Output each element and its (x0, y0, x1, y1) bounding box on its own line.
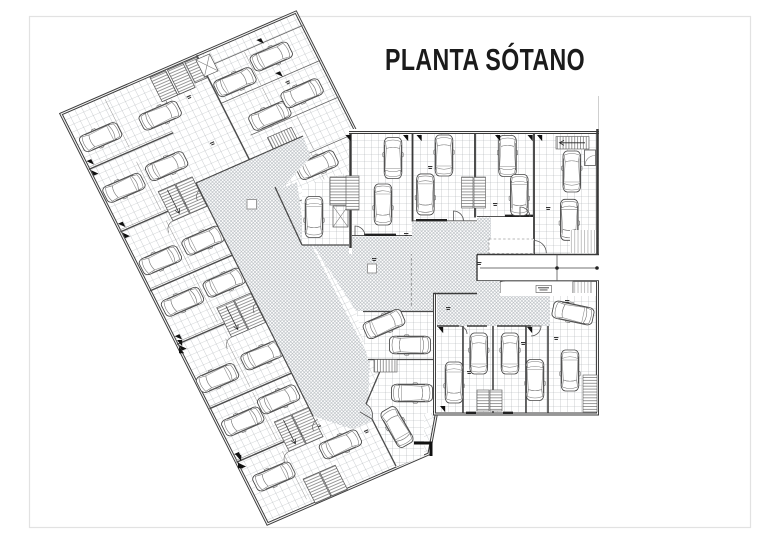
svg-text:PLANTA SÓTANO: PLANTA SÓTANO (385, 41, 585, 77)
